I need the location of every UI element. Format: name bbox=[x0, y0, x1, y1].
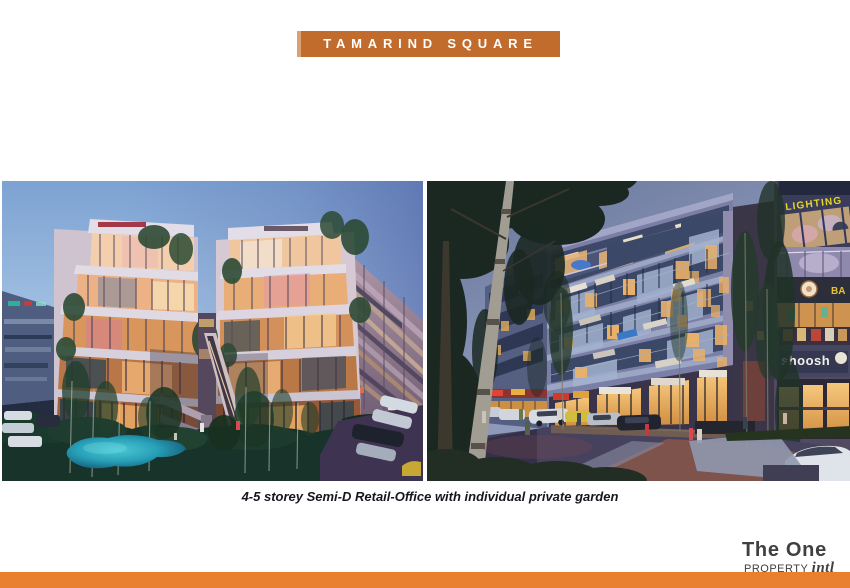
svg-text:BA: BA bbox=[831, 286, 845, 297]
